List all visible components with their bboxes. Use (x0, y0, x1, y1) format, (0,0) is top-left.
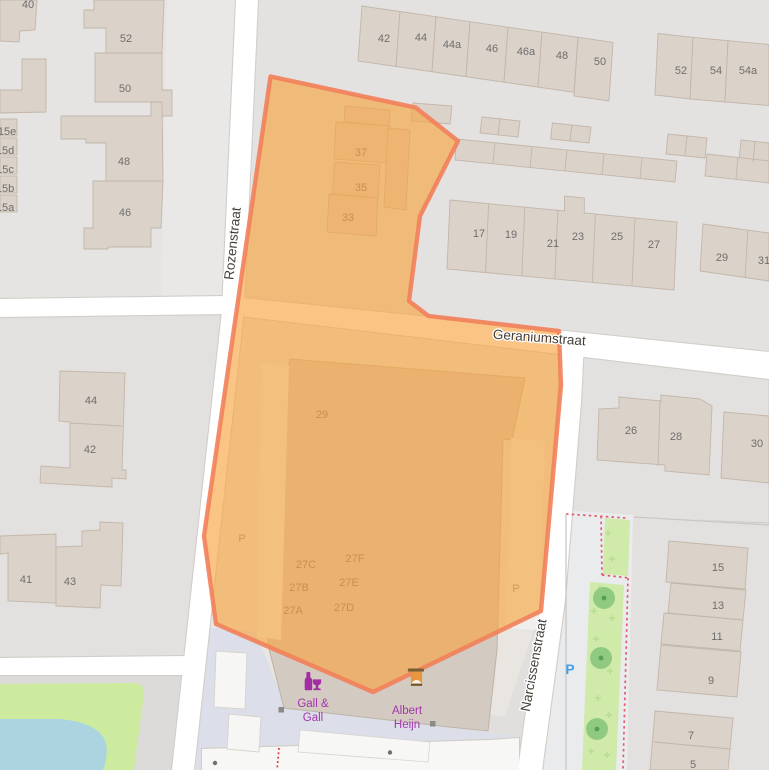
svg-text:19: 19 (505, 229, 517, 241)
svg-text:15d: 15d (0, 145, 14, 157)
svg-text:Heijn: Heijn (394, 719, 420, 731)
svg-text:42: 42 (84, 444, 96, 456)
svg-text:7: 7 (688, 730, 694, 742)
svg-text:46a: 46a (517, 46, 536, 58)
svg-text:15a: 15a (0, 202, 15, 214)
svg-text:23: 23 (572, 231, 584, 243)
svg-text:27: 27 (648, 239, 660, 251)
svg-text:50: 50 (119, 83, 131, 95)
svg-text:46: 46 (486, 43, 498, 55)
svg-text:44: 44 (85, 395, 97, 407)
svg-text:43: 43 (64, 576, 76, 588)
svg-text:44a: 44a (443, 39, 462, 51)
svg-text:9: 9 (708, 675, 714, 687)
svg-text:Gall: Gall (303, 712, 323, 724)
svg-text:46: 46 (119, 207, 131, 219)
svg-text:52: 52 (675, 65, 687, 77)
svg-text:15c: 15c (0, 164, 14, 176)
svg-text:48: 48 (556, 50, 568, 62)
svg-text:31: 31 (758, 255, 769, 267)
svg-text:48: 48 (118, 156, 130, 168)
svg-text:5: 5 (690, 759, 696, 770)
svg-text:15e: 15e (0, 126, 16, 138)
svg-text:15: 15 (712, 562, 724, 574)
svg-text:11: 11 (711, 631, 722, 643)
svg-text:40: 40 (22, 0, 34, 11)
svg-text:54: 54 (710, 65, 722, 77)
svg-text:28: 28 (670, 431, 682, 443)
svg-text:21: 21 (547, 238, 559, 250)
svg-text:25: 25 (611, 231, 623, 243)
svg-text:29: 29 (716, 252, 728, 264)
svg-text:50: 50 (594, 56, 606, 68)
svg-text:15b: 15b (0, 183, 14, 195)
svg-text:Gall &: Gall & (297, 698, 329, 710)
svg-text:26: 26 (625, 425, 637, 437)
svg-text:13: 13 (712, 600, 724, 612)
svg-text:44: 44 (415, 32, 427, 44)
svg-text:17: 17 (473, 228, 485, 240)
svg-text:41: 41 (20, 574, 32, 586)
svg-text:Albert: Albert (392, 705, 423, 717)
svg-text:42: 42 (378, 33, 390, 45)
svg-text:30: 30 (751, 438, 763, 450)
svg-text:P: P (565, 662, 574, 677)
svg-text:54a: 54a (739, 65, 758, 77)
svg-text:52: 52 (120, 33, 132, 45)
